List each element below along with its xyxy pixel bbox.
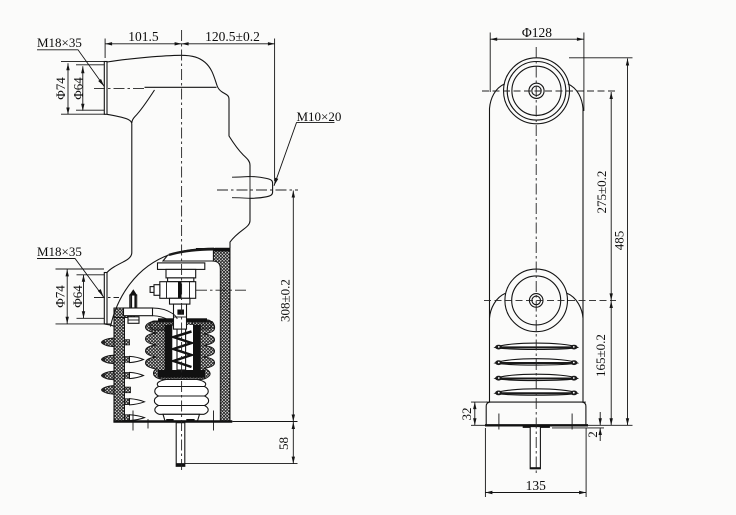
svg-text:165±0.2: 165±0.2 — [593, 334, 608, 377]
svg-text:M18×35: M18×35 — [37, 244, 82, 259]
svg-text:Φ74: Φ74 — [52, 285, 67, 308]
svg-text:Φ128: Φ128 — [522, 25, 552, 40]
svg-text:32: 32 — [459, 408, 474, 421]
svg-text:M10×20: M10×20 — [297, 109, 342, 124]
svg-text:Φ74: Φ74 — [53, 77, 68, 100]
svg-text:275±0.2: 275±0.2 — [594, 171, 609, 214]
svg-text:308±0.2: 308±0.2 — [278, 279, 293, 322]
svg-text:2: 2 — [585, 431, 600, 438]
svg-text:Φ64: Φ64 — [70, 285, 85, 308]
svg-text:135: 135 — [526, 478, 547, 493]
svg-text:M18×35: M18×35 — [37, 35, 82, 50]
svg-text:101.5: 101.5 — [128, 29, 159, 44]
svg-text:58: 58 — [276, 437, 291, 450]
svg-text:120.5±0.2: 120.5±0.2 — [205, 29, 260, 44]
svg-text:485: 485 — [612, 231, 627, 251]
svg-text:Φ64: Φ64 — [70, 77, 85, 100]
